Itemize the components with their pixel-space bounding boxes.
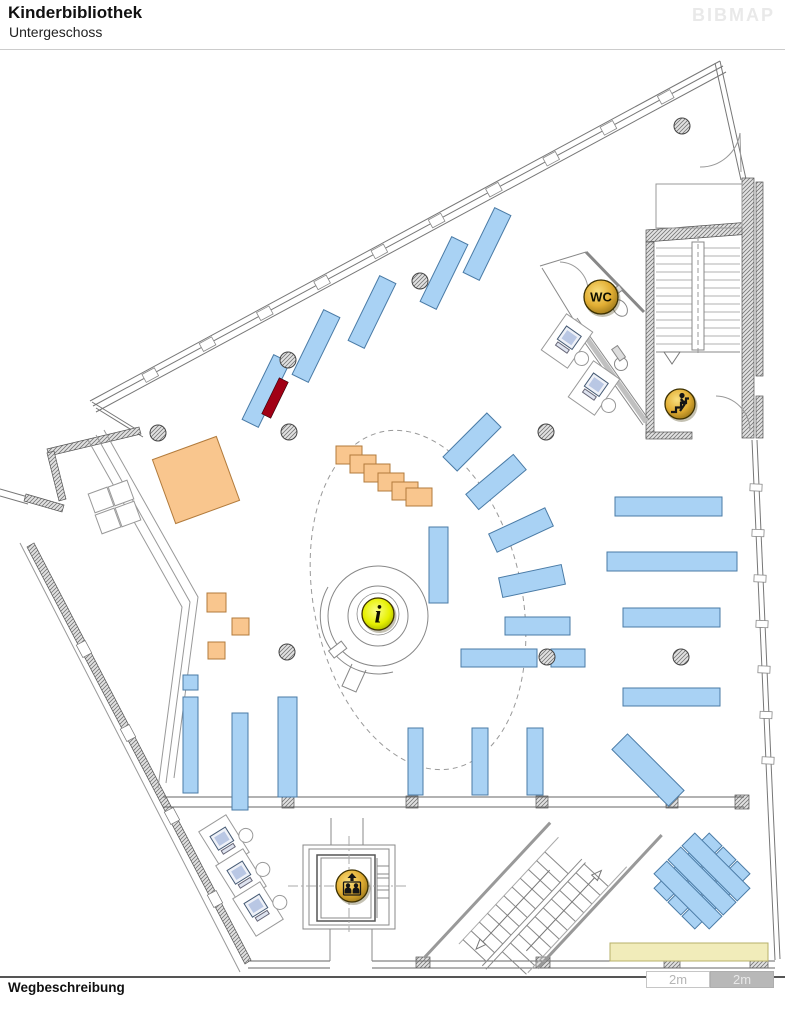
bench-layer [610, 943, 768, 961]
floor-subtitle: Untergeschoss [9, 24, 785, 40]
bookshelf [615, 497, 722, 516]
bookshelf [489, 508, 554, 552]
stairs-up-icon [665, 389, 698, 422]
floorplan-map: WCi [0, 0, 785, 1011]
svg-text:WC: WC [590, 290, 612, 305]
column [281, 424, 297, 440]
bookshelf [466, 454, 526, 509]
column [674, 118, 690, 134]
bookshelf [612, 734, 684, 806]
bench [610, 943, 768, 961]
bookshelf [443, 413, 501, 471]
bookshelf [278, 697, 297, 797]
wegbeschreibung-label: Wegbeschreibung [8, 980, 125, 995]
bookshelf [472, 728, 488, 795]
header: Kinderbibliothek Untergeschoss BIBMAP [0, 0, 785, 50]
wc-icon: WC [584, 280, 621, 317]
bookshelf [623, 608, 720, 627]
reading-steps [406, 488, 432, 506]
bibmap-logo: BIBMAP [692, 5, 775, 26]
column [279, 644, 295, 660]
lockers [88, 480, 141, 534]
bookshelf [420, 237, 468, 310]
column [673, 649, 689, 665]
bookshelf [183, 675, 198, 690]
column [539, 649, 555, 665]
play-furniture [208, 642, 225, 659]
stairwell-upper [656, 184, 742, 364]
bookshelf [527, 728, 543, 795]
bookshelf [348, 276, 396, 349]
scale-bar: 2m 2m [646, 971, 774, 988]
scale-segment: 2m [710, 971, 774, 988]
bookshelf [463, 208, 511, 281]
bookshelf [505, 617, 570, 635]
bookshelf [183, 697, 198, 793]
bookshelf [461, 649, 537, 667]
column [538, 424, 554, 440]
column [150, 425, 166, 441]
bibmap-page: WCi Kinderbibliothek Untergeschoss BIBMA… [0, 0, 785, 1011]
play-furniture [232, 618, 249, 635]
info-icon: i [357, 593, 399, 635]
column [280, 352, 296, 368]
play-furniture [152, 436, 239, 523]
page-title: Kinderbibliothek [8, 3, 785, 23]
elevator-icon [336, 870, 371, 905]
bookshelf [607, 552, 737, 571]
play-furniture [207, 593, 226, 612]
svg-text:i: i [375, 602, 382, 629]
bookshelf [232, 713, 248, 810]
bookshelf [551, 649, 585, 667]
scale-segment: 2m [646, 971, 710, 988]
bookshelf [623, 688, 720, 706]
bookshelf [499, 565, 566, 598]
bookshelf [408, 728, 423, 795]
bookshelf [429, 527, 448, 603]
bookshelf [292, 310, 340, 383]
column [412, 273, 428, 289]
